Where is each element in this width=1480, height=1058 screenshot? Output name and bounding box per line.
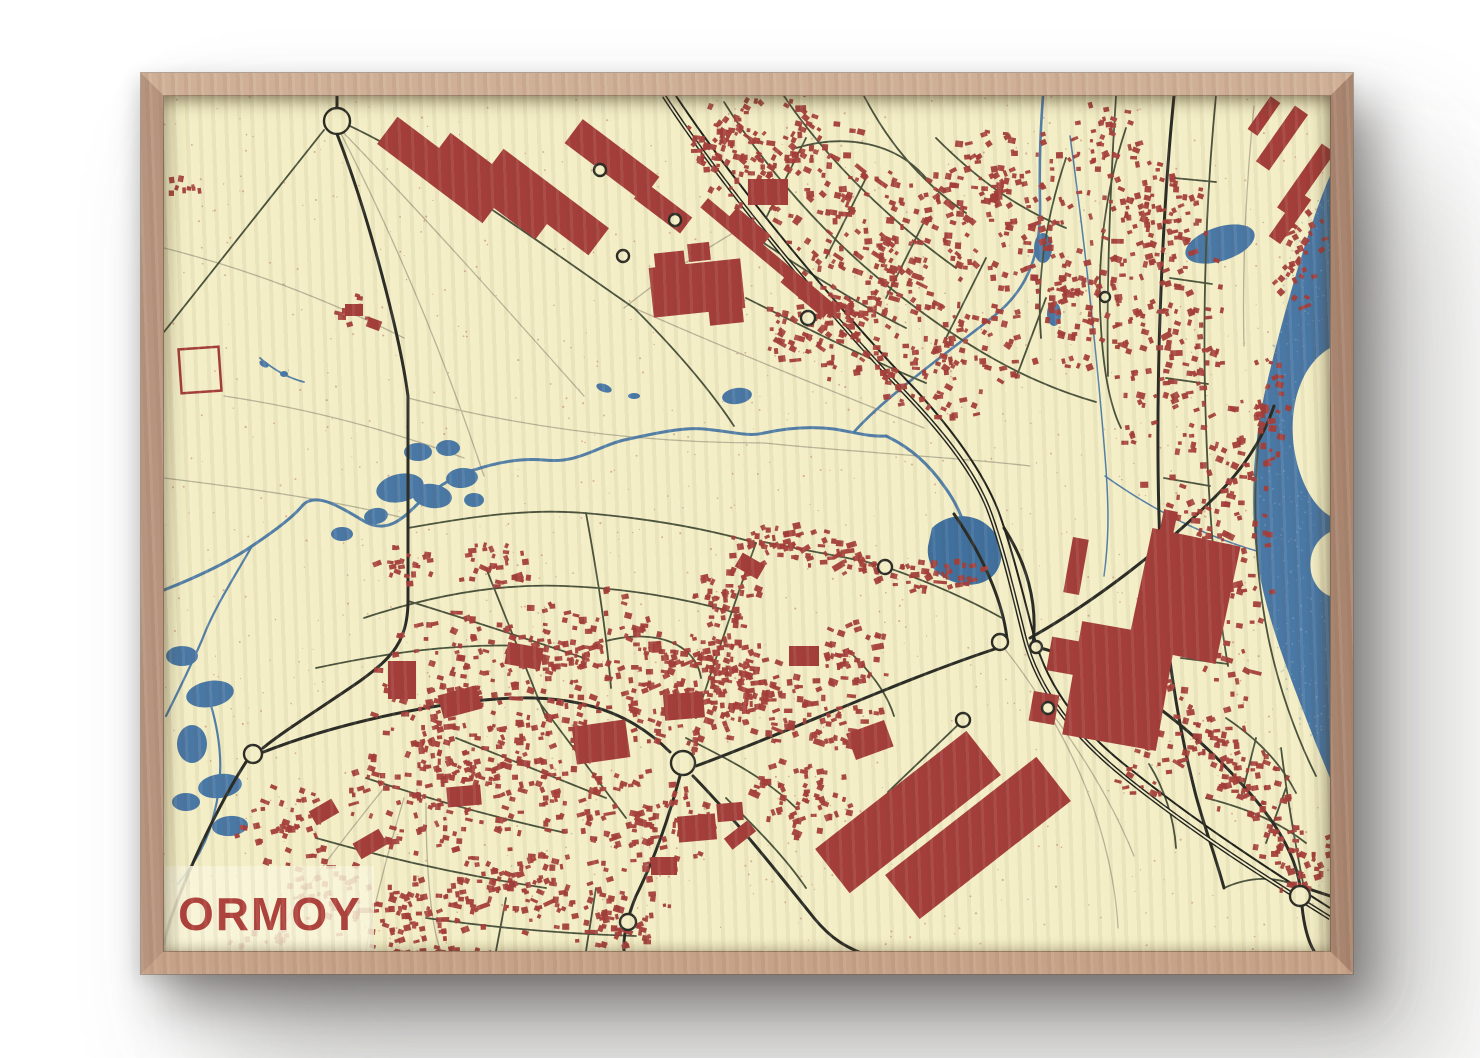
building xyxy=(491,692,498,699)
building xyxy=(894,238,899,244)
building xyxy=(780,693,785,699)
speckle-dot xyxy=(787,842,789,844)
speckle-dot xyxy=(517,359,519,361)
speckle-dot xyxy=(710,548,712,550)
building xyxy=(644,654,648,660)
water-glint xyxy=(1292,617,1294,619)
speckle-dot xyxy=(301,309,303,311)
building xyxy=(876,243,882,248)
speckle-dot xyxy=(1185,338,1187,340)
speckle-dot xyxy=(1088,148,1090,150)
roundabout xyxy=(1100,292,1110,302)
speckle-dot xyxy=(628,489,629,490)
speckle-dot xyxy=(811,138,812,139)
speckle-dot xyxy=(425,860,427,862)
water-glint xyxy=(1297,566,1298,567)
speckle-dot xyxy=(958,927,960,929)
building xyxy=(761,699,768,704)
building xyxy=(1049,159,1053,164)
building xyxy=(708,601,714,606)
speckle-dot xyxy=(1146,944,1148,946)
speckle-dot xyxy=(305,540,307,542)
speckle-dot xyxy=(848,409,850,411)
building xyxy=(1167,679,1172,683)
building xyxy=(734,705,741,709)
building xyxy=(385,907,392,913)
building xyxy=(560,663,567,667)
building xyxy=(787,158,801,164)
building xyxy=(633,628,639,633)
building xyxy=(443,825,448,831)
building xyxy=(1158,791,1162,797)
building xyxy=(1279,375,1284,378)
speckle-dot xyxy=(1081,454,1082,455)
speckle-dot xyxy=(202,263,204,265)
building xyxy=(843,152,851,158)
speckle-dot xyxy=(591,169,593,171)
building xyxy=(767,171,773,177)
building xyxy=(730,657,733,663)
speckle-dot xyxy=(926,635,927,636)
water-glint xyxy=(1272,345,1274,347)
speckle-dot xyxy=(882,787,883,788)
speckle-dot xyxy=(596,365,598,367)
building xyxy=(906,581,911,585)
building xyxy=(944,343,950,348)
speckle-dot xyxy=(1137,772,1139,774)
speckle-dot xyxy=(649,847,650,848)
speckle-dot xyxy=(214,370,216,372)
speckle-dot xyxy=(584,357,585,358)
speckle-dot xyxy=(335,386,337,388)
speckle-dot xyxy=(246,134,248,136)
speckle-dot xyxy=(580,481,582,483)
speckle-dot xyxy=(1258,655,1260,657)
building xyxy=(998,285,1004,291)
speckle-dot xyxy=(1137,109,1139,111)
water-glint xyxy=(1299,723,1301,725)
speckle-dot xyxy=(191,144,193,146)
speckle-dot xyxy=(789,312,790,313)
building xyxy=(615,931,622,936)
building xyxy=(942,359,946,362)
speckle-dot xyxy=(1243,702,1245,704)
speckle-dot xyxy=(245,150,247,152)
building xyxy=(1240,400,1244,404)
speckle-dot xyxy=(378,930,380,932)
building xyxy=(702,667,709,673)
building xyxy=(797,696,804,703)
building xyxy=(468,548,477,554)
speckle-dot xyxy=(524,503,525,504)
speckle-dot xyxy=(822,318,824,320)
speckle-dot xyxy=(884,116,886,118)
speckle-dot xyxy=(960,242,961,243)
building xyxy=(709,615,715,618)
speckle-dot xyxy=(565,847,567,849)
building xyxy=(956,200,963,206)
speckle-dot xyxy=(925,514,927,516)
building xyxy=(934,415,942,420)
building xyxy=(365,316,370,319)
building xyxy=(809,158,813,163)
building xyxy=(726,584,734,588)
building xyxy=(1110,123,1116,128)
water-glint xyxy=(1275,537,1277,539)
water-glint xyxy=(1285,642,1287,644)
speckle-dot xyxy=(1305,831,1307,833)
building xyxy=(1239,475,1247,479)
speckle-dot xyxy=(829,255,831,257)
building xyxy=(306,854,313,859)
building xyxy=(808,563,811,567)
speckle-dot xyxy=(639,357,641,359)
speckle-dot xyxy=(634,572,635,573)
speckle-dot xyxy=(777,798,778,799)
building xyxy=(794,685,799,690)
speckle-dot xyxy=(1049,122,1051,124)
speckle-dot xyxy=(808,940,809,941)
building xyxy=(1141,663,1145,668)
building xyxy=(685,697,693,702)
building xyxy=(480,924,486,930)
building xyxy=(427,764,431,768)
speckle-dot xyxy=(784,901,786,903)
speckle-dot xyxy=(1039,566,1040,567)
building xyxy=(1252,520,1258,527)
building xyxy=(562,641,569,648)
speckle-dot xyxy=(201,247,203,249)
building xyxy=(924,336,928,342)
water-glint xyxy=(1284,427,1285,428)
building xyxy=(398,906,402,912)
building xyxy=(1076,167,1081,171)
speckle-dot xyxy=(948,163,950,165)
speckle-dot xyxy=(764,645,765,646)
building xyxy=(518,811,524,814)
speckle-dot xyxy=(349,634,350,635)
building xyxy=(638,667,642,672)
speckle-dot xyxy=(205,726,207,728)
building xyxy=(543,667,550,671)
building xyxy=(903,354,907,358)
speckle-dot xyxy=(1322,881,1323,882)
speckle-dot xyxy=(1050,359,1052,361)
building xyxy=(575,648,578,654)
building xyxy=(611,925,617,931)
speckle-dot xyxy=(904,643,905,644)
water-glint xyxy=(1327,261,1329,263)
water-glint xyxy=(1311,680,1312,681)
building xyxy=(522,559,529,566)
water-glint xyxy=(1297,495,1299,497)
water-glint xyxy=(1269,481,1270,482)
building xyxy=(875,365,881,370)
speckle-dot xyxy=(1065,485,1067,487)
speckle-dot xyxy=(745,758,746,759)
speckle-dot xyxy=(700,648,701,649)
water-glint xyxy=(1321,713,1323,715)
building xyxy=(383,687,391,694)
water-glint xyxy=(1299,528,1301,530)
building xyxy=(1120,262,1124,266)
speckle-dot xyxy=(845,808,847,810)
speckle-dot xyxy=(1186,261,1187,262)
building xyxy=(788,724,795,730)
building xyxy=(1167,240,1173,246)
water-glint xyxy=(1296,546,1298,548)
water-glint xyxy=(1310,735,1312,737)
speckle-dot xyxy=(1059,326,1061,328)
building xyxy=(1220,361,1225,365)
building xyxy=(721,615,726,620)
speckle-dot xyxy=(997,869,998,870)
speckle-dot xyxy=(336,196,337,197)
speckle-dot xyxy=(247,722,248,723)
building xyxy=(540,759,547,765)
building xyxy=(967,259,972,265)
speckle-dot xyxy=(361,539,362,540)
building xyxy=(688,817,694,821)
building xyxy=(178,175,184,182)
building xyxy=(1143,695,1150,702)
building xyxy=(997,165,1005,172)
speckle-dot xyxy=(307,448,309,450)
building xyxy=(810,155,814,159)
water-glint xyxy=(1285,666,1287,668)
building xyxy=(186,186,191,191)
building xyxy=(541,775,547,779)
building xyxy=(1111,675,1117,680)
building xyxy=(572,745,580,750)
building xyxy=(766,816,771,822)
water-glint xyxy=(1319,287,1320,288)
building xyxy=(1173,714,1180,719)
building xyxy=(827,320,834,325)
speckle-dot xyxy=(931,100,933,102)
water-glint xyxy=(1305,631,1307,633)
speckle-dot xyxy=(314,218,316,220)
building xyxy=(1233,739,1239,742)
building xyxy=(728,127,735,133)
building xyxy=(726,569,734,576)
roundabout xyxy=(669,214,681,226)
building xyxy=(874,319,879,324)
speckle-dot xyxy=(860,595,862,597)
speckle-dot xyxy=(1227,917,1229,919)
building xyxy=(1149,259,1155,266)
speckle-dot xyxy=(886,304,888,306)
water-glint xyxy=(1283,420,1285,422)
speckle-dot xyxy=(172,486,174,488)
building xyxy=(1203,541,1209,546)
speckle-dot xyxy=(376,461,378,463)
speckle-dot xyxy=(568,417,570,419)
speckle-dot xyxy=(1027,899,1029,901)
speckle-dot xyxy=(1145,495,1146,496)
water-glint xyxy=(1310,598,1312,600)
building xyxy=(944,370,949,376)
building xyxy=(572,626,577,631)
building xyxy=(839,186,847,193)
building xyxy=(922,370,927,376)
building xyxy=(1218,284,1223,290)
building xyxy=(1193,222,1199,226)
building xyxy=(902,344,909,349)
speckle-dot xyxy=(584,442,586,444)
speckle-dot xyxy=(1025,344,1027,346)
building xyxy=(647,739,651,743)
speckle-dot xyxy=(422,422,424,424)
building xyxy=(673,650,679,655)
building xyxy=(707,693,713,698)
building-large xyxy=(388,661,416,699)
water-glint xyxy=(1320,600,1321,601)
speckle-dot xyxy=(832,578,834,580)
speckle-dot xyxy=(733,657,734,658)
building xyxy=(286,862,291,866)
water-glint xyxy=(1285,290,1287,292)
speckle-dot xyxy=(247,778,248,779)
water-glint xyxy=(1295,381,1297,383)
speckle-dot xyxy=(1225,178,1227,180)
speckle-dot xyxy=(883,652,884,653)
speckle-dot xyxy=(1180,216,1181,217)
speckle-dot xyxy=(918,287,920,289)
water-glint xyxy=(1298,526,1300,528)
speckle-dot xyxy=(905,321,907,323)
water-glint xyxy=(1304,645,1305,646)
building xyxy=(840,676,848,680)
building xyxy=(604,677,609,681)
water-glint xyxy=(1277,647,1279,649)
building xyxy=(1115,322,1122,326)
building xyxy=(1074,288,1080,294)
speckle-dot xyxy=(228,324,229,325)
speckle-dot xyxy=(249,96,251,98)
speckle-dot xyxy=(983,151,985,153)
building xyxy=(1012,360,1019,364)
speckle-dot xyxy=(388,379,389,380)
water-glint xyxy=(1322,319,1323,320)
speckle-dot xyxy=(672,410,673,411)
building xyxy=(820,286,826,290)
speckle-dot xyxy=(175,123,176,124)
speckle-dot xyxy=(1198,773,1199,774)
speckle-dot xyxy=(606,119,608,121)
building xyxy=(1144,222,1151,228)
building xyxy=(1191,512,1197,516)
speckle-dot xyxy=(1024,654,1026,656)
speckle-dot xyxy=(1027,143,1028,144)
speckle-dot xyxy=(432,294,433,295)
building xyxy=(792,152,799,158)
speckle-dot xyxy=(406,279,407,280)
speckle-dot xyxy=(777,489,779,491)
building xyxy=(1268,425,1277,432)
building xyxy=(1187,745,1194,750)
water-glint xyxy=(1301,222,1303,224)
speckle-dot xyxy=(302,205,303,206)
town-label-text: ORMOY xyxy=(178,888,362,940)
building xyxy=(853,705,858,711)
speckle-dot xyxy=(487,244,489,246)
building xyxy=(542,659,549,665)
building xyxy=(538,736,543,740)
building xyxy=(604,910,612,915)
pond xyxy=(331,527,353,541)
speckle-dot xyxy=(771,881,773,883)
building xyxy=(1186,709,1195,716)
speckle-dot xyxy=(935,615,936,616)
building xyxy=(841,774,846,780)
speckle-dot xyxy=(1262,222,1263,223)
speckle-dot xyxy=(173,579,174,580)
speckle-dot xyxy=(841,371,842,372)
building xyxy=(1197,509,1203,515)
water-glint xyxy=(1313,524,1314,525)
building xyxy=(1155,699,1160,704)
building xyxy=(509,696,523,701)
building xyxy=(346,304,350,308)
speckle-dot xyxy=(814,889,815,890)
speckle-dot xyxy=(1079,313,1081,315)
water-glint xyxy=(1287,323,1288,324)
building xyxy=(668,904,672,908)
speckle-dot xyxy=(980,943,982,945)
speckle-dot xyxy=(951,720,953,722)
speckle-dot xyxy=(1236,694,1238,696)
speckle-dot xyxy=(294,478,296,480)
speckle-dot xyxy=(614,470,615,471)
speckle-dot xyxy=(775,776,777,778)
speckle-dot xyxy=(317,690,319,692)
water-glint xyxy=(1302,287,1303,288)
speckle-dot xyxy=(191,457,193,459)
building xyxy=(540,732,544,736)
speckle-dot xyxy=(322,681,323,682)
water-glint xyxy=(1294,539,1296,541)
water-glint xyxy=(1286,343,1288,345)
building xyxy=(826,162,832,169)
speckle-dot xyxy=(1140,422,1141,423)
water-glint xyxy=(1281,650,1283,652)
speckle-dot xyxy=(247,536,249,538)
speckle-dot xyxy=(1099,203,1100,204)
building xyxy=(468,856,473,860)
building xyxy=(1240,777,1246,782)
speckle-dot xyxy=(758,409,760,411)
speckle-dot xyxy=(326,399,328,401)
building xyxy=(631,700,638,706)
speckle-dot xyxy=(615,233,617,235)
speckle-dot xyxy=(724,737,726,739)
building xyxy=(956,211,964,217)
building xyxy=(1214,678,1219,682)
speckle-dot xyxy=(798,922,799,923)
speckle-dot xyxy=(1319,886,1320,887)
speckle-dot xyxy=(212,210,213,211)
speckle-dot xyxy=(269,660,270,661)
speckle-dot xyxy=(544,169,546,171)
speckle-dot xyxy=(1035,749,1037,751)
speckle-dot xyxy=(554,769,556,771)
water-glint xyxy=(1321,207,1323,209)
speckle-dot xyxy=(517,475,519,477)
building xyxy=(633,736,638,742)
water-glint xyxy=(1311,513,1312,514)
building xyxy=(1133,687,1140,693)
